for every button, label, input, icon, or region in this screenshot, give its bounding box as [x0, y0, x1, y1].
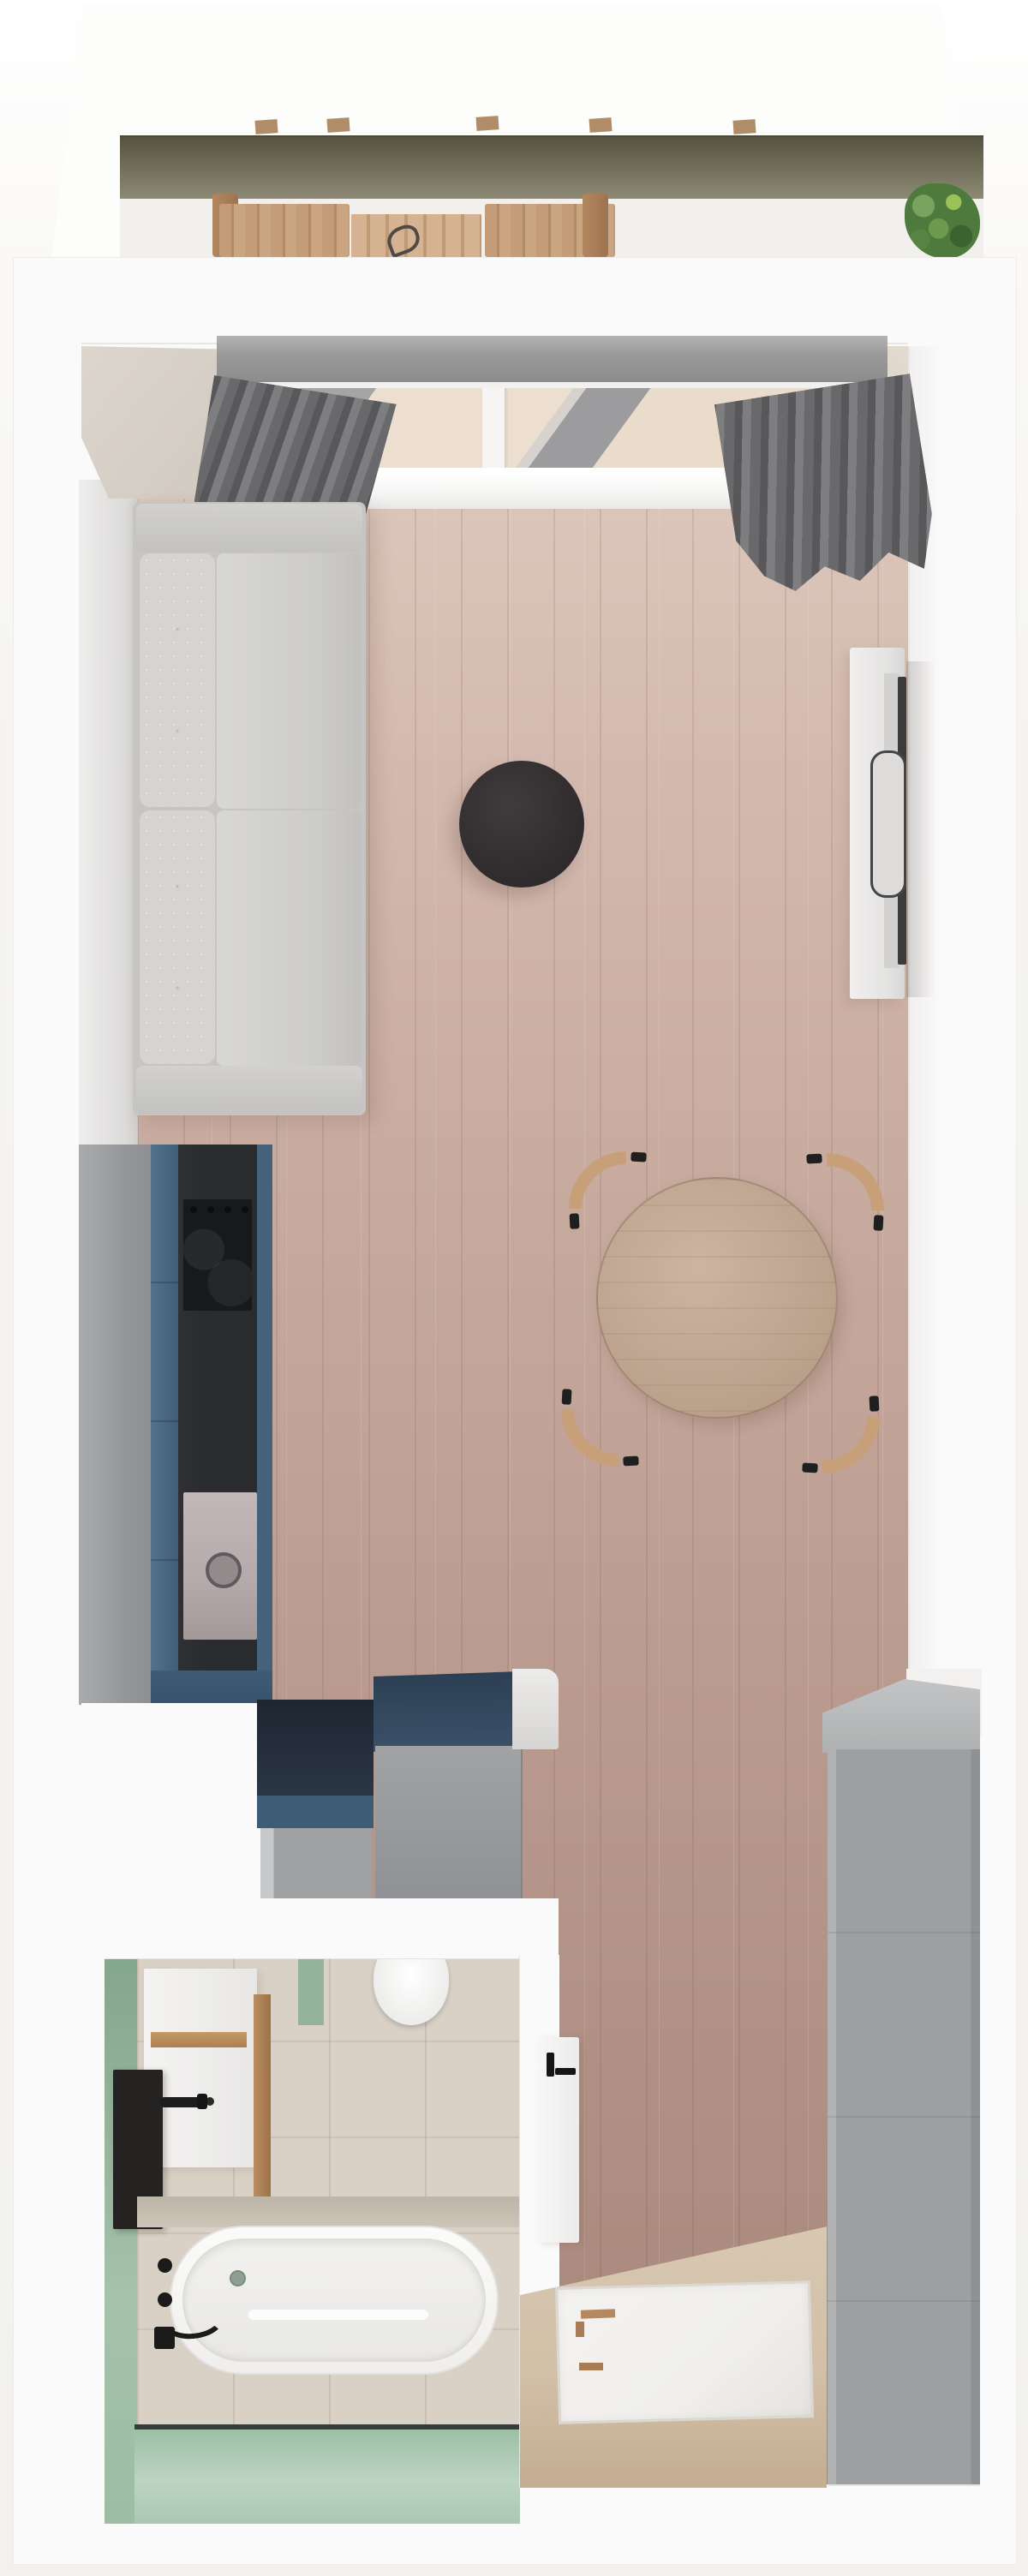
sofa — [133, 502, 366, 1115]
storage-cabinet-front — [375, 1746, 523, 1904]
vanity-wood-panel — [254, 1994, 271, 2196]
bath-faucet-body — [154, 2327, 175, 2349]
dining-table — [596, 1177, 838, 1419]
open-shelf-front — [260, 1828, 372, 1904]
basin-faucet-spout — [197, 2094, 207, 2109]
bathroom-wall-left — [81, 1898, 105, 2563]
shower-fitting — [576, 2322, 584, 2337]
open-shelf-top — [257, 1796, 374, 1828]
bench-post — [583, 194, 608, 257]
sofa-seat-cushion — [217, 810, 361, 1066]
tub-drain — [230, 2270, 246, 2286]
bath-faucet-knob — [158, 2258, 172, 2273]
balcony-railing — [120, 135, 983, 200]
vanity-wood-trim — [151, 2032, 247, 2047]
kitchen-unit-left — [151, 1145, 178, 1705]
shower-fitting — [581, 2309, 615, 2318]
railing-joist — [254, 119, 278, 134]
green-wall-return — [298, 1958, 324, 2025]
door-handle — [547, 2053, 554, 2077]
curtain-rail-box — [217, 336, 888, 385]
shower-fitting — [579, 2363, 603, 2370]
cooktop — [183, 1199, 252, 1311]
sofa-back-cushion — [140, 810, 215, 1064]
wardrobe — [828, 1749, 980, 2486]
kitchen-unit-right — [257, 1145, 272, 1705]
sofa-armrest — [136, 1066, 362, 1114]
green-floor-zone — [134, 2430, 520, 2524]
wall-end-cap — [512, 1669, 559, 1749]
tv-mount — [870, 750, 906, 898]
bathtub — [170, 2226, 499, 2375]
railing-joist — [475, 116, 499, 131]
green-accent-wall — [103, 1953, 137, 2524]
window-mullion — [482, 382, 505, 480]
storage-cabinet-top — [374, 1671, 521, 1752]
shower-tray — [555, 2280, 814, 2424]
window-frame — [217, 382, 876, 388]
railing-joist — [326, 117, 350, 133]
open-shelf-unit — [257, 1700, 374, 1796]
railing-joist — [732, 119, 756, 134]
tub-step-shadow — [137, 2196, 519, 2227]
railing-joist — [589, 117, 612, 133]
sofa-armrest — [136, 504, 362, 552]
sink-drain — [206, 1552, 242, 1588]
floor-plan — [0, 0, 1028, 2576]
kitchen-tall-cabinet — [79, 1145, 151, 1705]
sofa-seat-cushion — [217, 553, 361, 809]
sofa-back-cushion — [140, 553, 215, 807]
kitchen-unit-end — [151, 1671, 272, 1705]
bathroom-wall-top — [81, 1898, 559, 1959]
side-table — [459, 761, 584, 888]
door-handle — [555, 2068, 576, 2075]
cooktop-knobs — [190, 1206, 197, 1213]
tv-shadow — [906, 661, 935, 997]
outdoor-bench-left — [219, 204, 350, 257]
bath-faucet-knob — [158, 2292, 172, 2307]
